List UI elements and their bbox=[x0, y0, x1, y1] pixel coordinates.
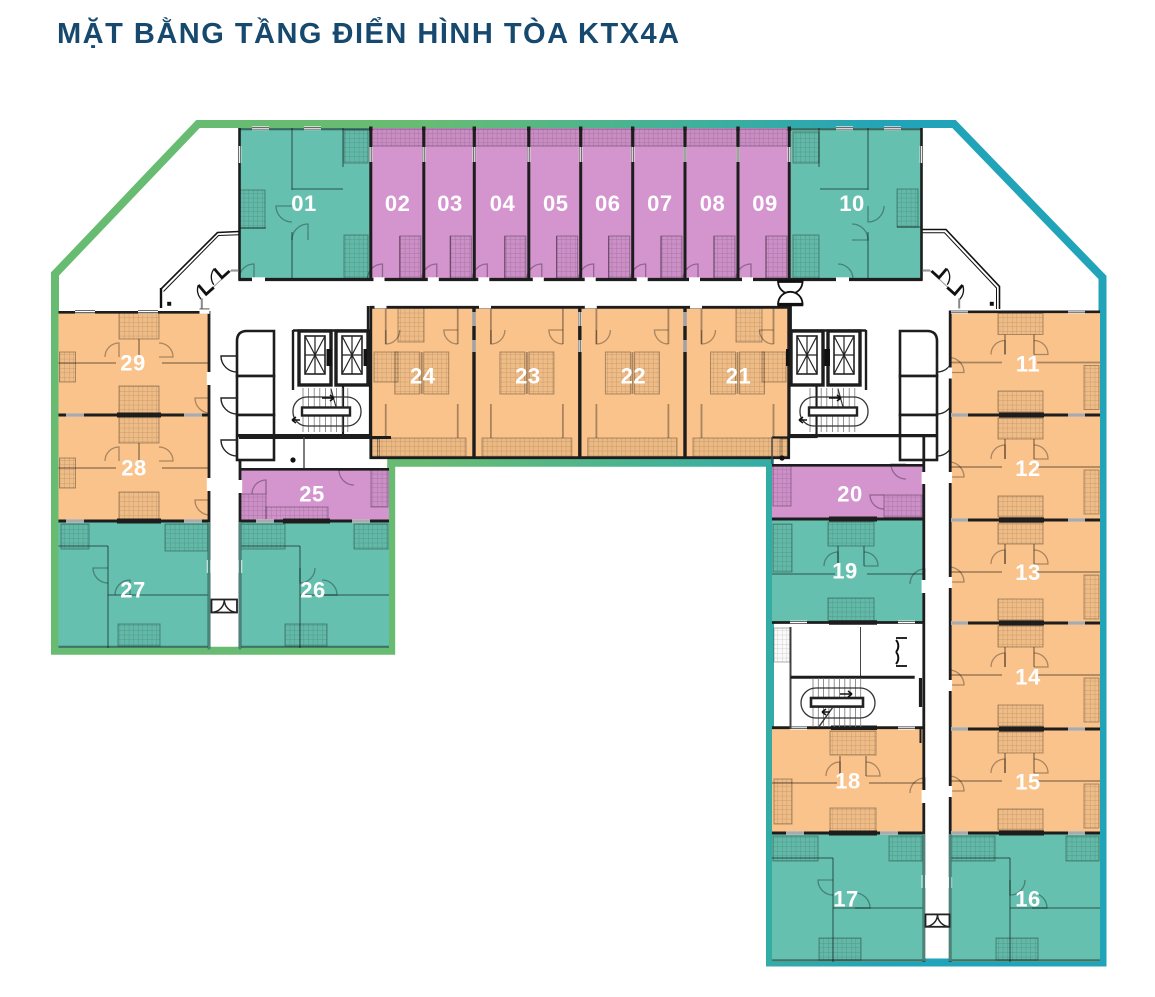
svg-text:28: 28 bbox=[121, 456, 146, 481]
svg-text:20: 20 bbox=[837, 482, 862, 507]
svg-text:26: 26 bbox=[300, 578, 325, 603]
svg-text:02: 02 bbox=[385, 191, 410, 216]
svg-text:19: 19 bbox=[832, 559, 857, 584]
svg-text:01: 01 bbox=[291, 191, 316, 216]
svg-text:05: 05 bbox=[543, 191, 568, 216]
svg-text:MẶT BẰNG TẦNG ĐIỂN HÌNH TÒA KT: MẶT BẰNG TẦNG ĐIỂN HÌNH TÒA KTX4A bbox=[57, 16, 681, 50]
svg-text:17: 17 bbox=[833, 887, 858, 912]
svg-text:04: 04 bbox=[490, 191, 516, 216]
svg-text:16: 16 bbox=[1015, 887, 1040, 912]
svg-text:10: 10 bbox=[839, 191, 864, 216]
svg-text:13: 13 bbox=[1015, 560, 1040, 585]
svg-text:23: 23 bbox=[515, 364, 540, 389]
svg-text:15: 15 bbox=[1015, 770, 1040, 795]
svg-text:22: 22 bbox=[621, 364, 646, 389]
svg-text:21: 21 bbox=[726, 364, 751, 389]
svg-text:25: 25 bbox=[299, 482, 324, 507]
svg-text:11: 11 bbox=[1016, 351, 1040, 376]
svg-text:12: 12 bbox=[1015, 456, 1040, 481]
svg-text:27: 27 bbox=[120, 578, 145, 603]
svg-text:29: 29 bbox=[120, 351, 145, 376]
svg-text:14: 14 bbox=[1015, 665, 1041, 690]
svg-text:09: 09 bbox=[752, 191, 777, 216]
svg-text:07: 07 bbox=[647, 191, 672, 216]
svg-text:24: 24 bbox=[410, 364, 436, 389]
svg-text:18: 18 bbox=[835, 769, 860, 794]
svg-text:06: 06 bbox=[595, 191, 620, 216]
svg-text:08: 08 bbox=[700, 191, 725, 216]
svg-text:03: 03 bbox=[437, 191, 462, 216]
